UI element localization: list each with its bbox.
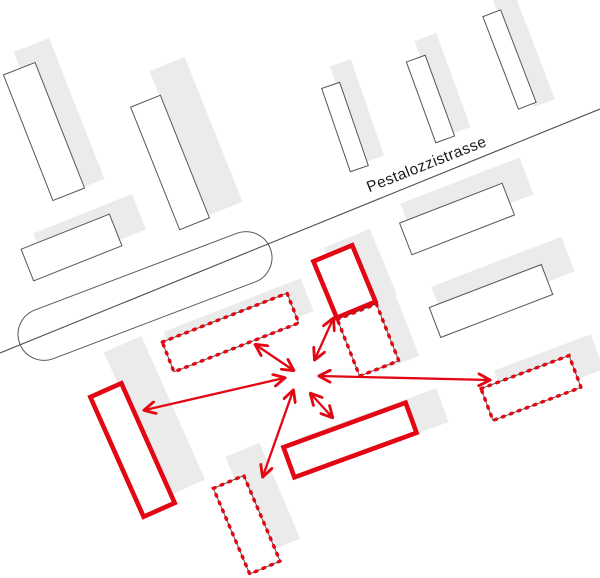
relation-arrow-north bbox=[315, 319, 333, 359]
relation-arrow-southeast bbox=[311, 394, 332, 417]
site-plan-canvas bbox=[0, 0, 600, 578]
relation-arrow-northwest bbox=[256, 345, 293, 370]
relation-arrow-east bbox=[320, 376, 489, 380]
site-plan-map: Pestalozzistrasse bbox=[0, 0, 600, 578]
proposed-building-south bbox=[283, 403, 416, 478]
